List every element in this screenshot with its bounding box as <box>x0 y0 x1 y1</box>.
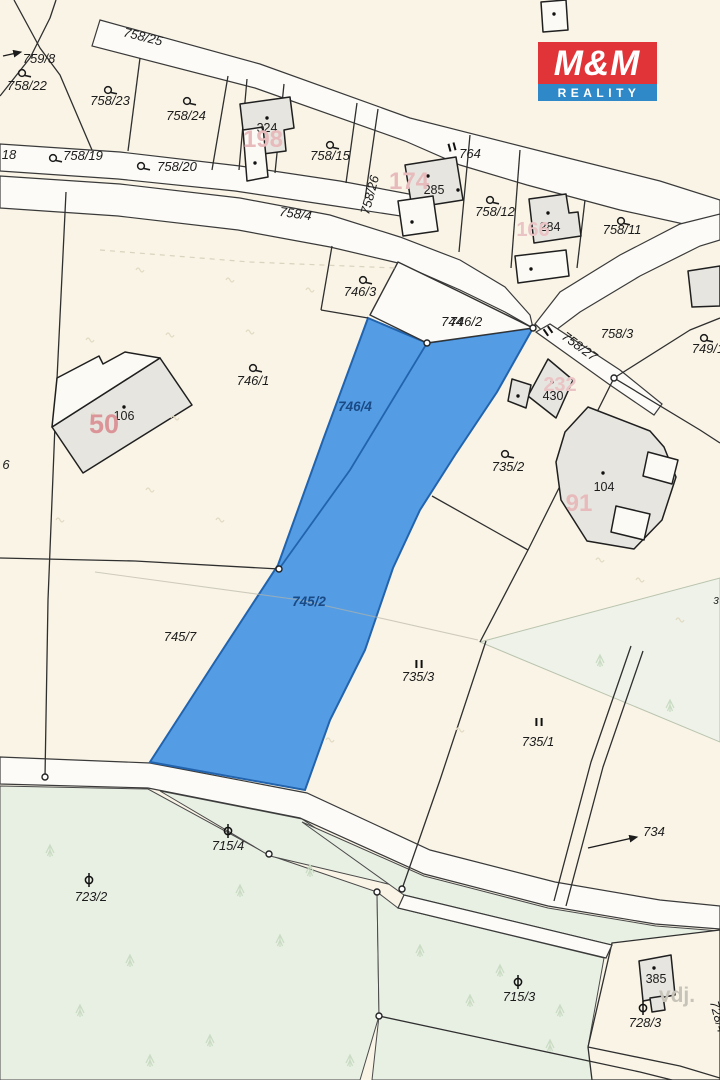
label-723-2: 723/2 <box>75 889 108 904</box>
dot-symbol <box>253 161 256 164</box>
vertex-symbol <box>266 851 272 857</box>
label-vdj: vdj. <box>659 984 695 1007</box>
label-735-3: 735/3 <box>402 669 435 684</box>
building-top-right <box>688 266 720 307</box>
label-749-1: 749/1 <box>692 341 720 356</box>
label-758-3: 758/3 <box>601 326 634 341</box>
cadastral-map-viewport: 759/8758/22758/23758/24758/1518758/19758… <box>0 0 720 1080</box>
label-758-19: 758/19 <box>63 148 103 163</box>
label-f174: 174 <box>389 168 430 195</box>
label-758-23: 758/23 <box>90 93 131 108</box>
label-746-4: 746/4 <box>338 399 372 414</box>
dot-symbol <box>601 471 604 474</box>
label-745-2: 745/2 <box>292 594 326 609</box>
label-759-8: 759/8 <box>23 51 56 66</box>
dot-symbol <box>410 220 413 223</box>
label-758-24: 758/24 <box>166 108 206 123</box>
label-3: 3 <box>713 596 719 607</box>
label-f198: 198 <box>243 126 283 153</box>
vertex-symbol <box>42 774 48 780</box>
label-758-15: 758/15 <box>310 148 351 163</box>
label-715-4: 715/4 <box>212 838 245 853</box>
building-285-annex <box>398 196 438 236</box>
cadastral-map: 759/8758/22758/23758/24758/1518758/19758… <box>0 0 720 1080</box>
label-6: 6 <box>2 457 10 472</box>
label-f50: 50 <box>89 409 119 439</box>
label-718: 18 <box>2 147 17 162</box>
label-758-11: 758/11 <box>603 222 642 237</box>
vertex-symbol <box>276 566 282 572</box>
label-f232: 232 <box>543 374 576 396</box>
vertex-symbol <box>530 325 536 331</box>
label-746-3: 746/3 <box>344 284 377 299</box>
label-735-2: 735/2 <box>492 459 525 474</box>
dot-symbol <box>456 188 459 191</box>
label-745-7: 745/7 <box>164 629 197 644</box>
dot-symbol <box>546 211 549 214</box>
label-f91: 91 <box>566 490 593 517</box>
label-b104: 104 <box>594 480 615 494</box>
label-728-3: 728/3 <box>629 1015 662 1030</box>
logo-reality-text: REALITY <box>558 86 641 100</box>
label-735-1: 735/1 <box>522 734 555 749</box>
dot-symbol <box>516 394 519 397</box>
label-758-12: 758/12 <box>475 204 516 219</box>
label-758-20: 758/20 <box>157 159 198 174</box>
dot-symbol <box>552 12 555 15</box>
building-top-edge <box>541 0 568 32</box>
dot-symbol <box>652 966 655 969</box>
label-746-1: 746/1 <box>237 373 270 388</box>
vertex-symbol <box>399 886 405 892</box>
label-f166: 166 <box>516 219 549 241</box>
vertex-symbol <box>374 889 380 895</box>
label-746-2: 746/2 <box>450 314 483 329</box>
vertex-symbol <box>424 340 430 346</box>
logo-mm-text: M&M <box>554 44 641 83</box>
vertex-symbol <box>611 375 617 381</box>
dot-symbol <box>529 267 532 270</box>
dot-symbol <box>265 116 268 119</box>
label-734: 734 <box>643 824 665 839</box>
label-758-22: 758/22 <box>7 78 48 93</box>
vertex-symbol <box>376 1013 382 1019</box>
mm-reality-logo: M&M REALITY <box>538 42 657 101</box>
label-764: 764 <box>459 146 481 161</box>
label-715-3: 715/3 <box>503 989 536 1004</box>
